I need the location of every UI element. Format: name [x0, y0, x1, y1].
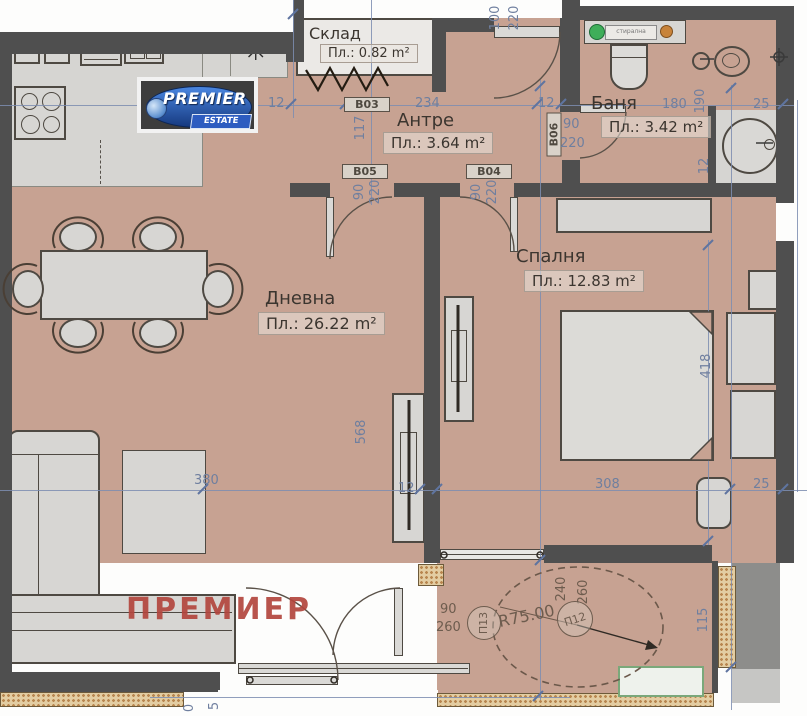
dim-380: 380	[194, 474, 219, 488]
dim-568: 568	[355, 414, 369, 450]
room-area-living: Пл.: 26.22 m²	[258, 312, 385, 335]
room-name-hallway: Антре	[397, 110, 454, 131]
dim-234: 234	[415, 97, 440, 111]
dim-cut-0: 0	[183, 690, 197, 716]
marker-p13: П13	[467, 606, 501, 640]
room-area-hallway: Пл.: 3.64 m²	[383, 132, 493, 154]
marker-p12: П12	[557, 601, 593, 637]
dim-260: 260	[436, 621, 461, 635]
storage-zigzag	[306, 68, 388, 90]
premier-estate-logo: PREMIER ESTATE	[137, 77, 258, 133]
dim-100: 100	[489, 0, 503, 36]
floor-plan: ✳	[0, 0, 807, 716]
dim-12: 12	[398, 482, 415, 496]
dim-308: 308	[595, 478, 620, 492]
dim-90: 90	[563, 118, 580, 132]
dim-117: 117	[354, 110, 368, 146]
dim-12: 12	[268, 97, 285, 111]
room-area-bedroom: Пл.: 12.83 m²	[524, 270, 644, 292]
room-area-storage: Пл.: 0.82 m²	[320, 44, 418, 63]
dim-90: 90	[353, 174, 367, 210]
dim-90: 90	[440, 603, 457, 617]
room-area-bathroom: Пл.: 3.42 m²	[601, 116, 711, 138]
radius-arrowhead	[645, 640, 658, 650]
dim-115: 115	[697, 602, 711, 638]
entrance-door-arc	[494, 32, 560, 98]
logo-text-estate: ESTATE	[190, 114, 252, 129]
cabinet-door-blades	[409, 305, 458, 530]
room-name-storage: Склад	[309, 24, 361, 43]
dim-220: 220	[369, 174, 383, 210]
dim-220: 220	[486, 174, 500, 210]
dim-418: 418	[700, 348, 714, 384]
balcony-door-arc-2	[333, 588, 400, 655]
dim-190: 190	[694, 83, 708, 119]
room-name-bathroom: Баня	[591, 93, 637, 114]
dim-90: 90	[470, 174, 484, 210]
dim-180: 180	[662, 98, 687, 112]
agency-watermark: ПРЕМИЕР	[126, 592, 312, 627]
dim-cut-5: 5	[208, 688, 222, 716]
room-name-bedroom: Спалня	[516, 246, 585, 267]
dim-12: 12	[698, 148, 712, 184]
logo-text-premier: PREMIER	[163, 89, 251, 108]
dim-12: 12	[538, 97, 555, 111]
bath-connectors	[700, 48, 788, 143]
dim-220: 220	[508, 0, 522, 36]
bed-pillow-folds	[690, 312, 712, 460]
dim-220: 220	[560, 137, 585, 151]
chair-back-arcs	[4, 217, 243, 352]
dim-25: 25	[753, 98, 770, 112]
room-name-living: Дневна	[265, 288, 335, 309]
dim-25: 25	[753, 478, 770, 492]
